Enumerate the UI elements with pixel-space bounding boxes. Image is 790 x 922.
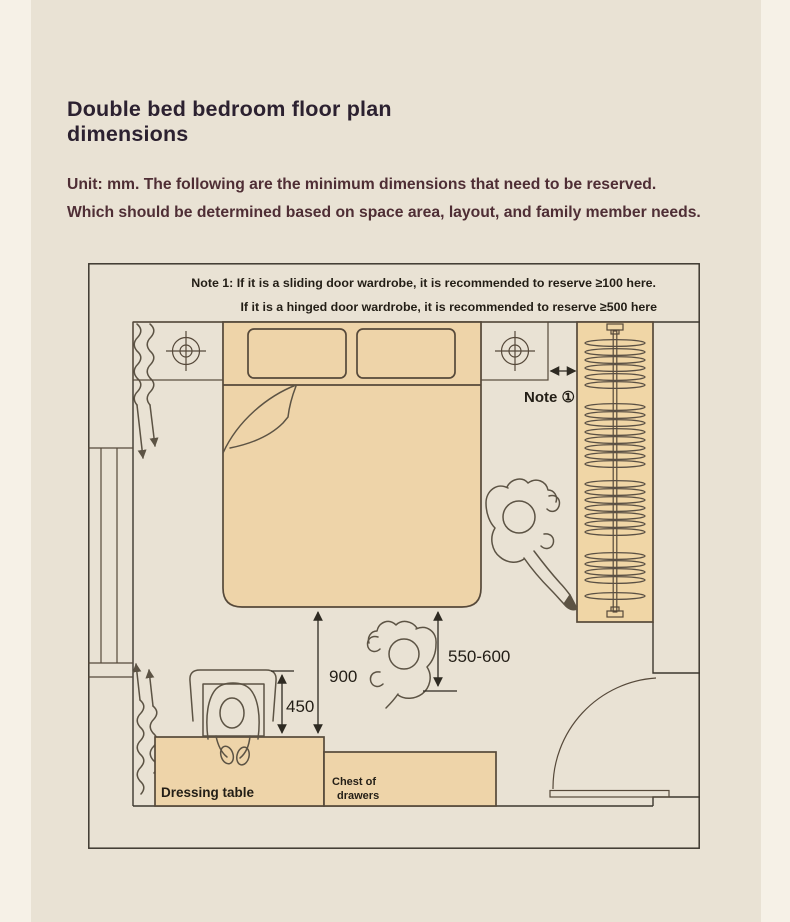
right-margin — [761, 0, 790, 922]
page-title: Double bed bedroom floor plan dimensions — [67, 97, 392, 146]
double-bed — [223, 322, 481, 607]
title-line2: dimensions — [67, 122, 392, 147]
dimension-900-label: 900 — [329, 667, 357, 686]
window-symbol — [88, 448, 133, 677]
page-subtitle: Unit: mm. The following are the minimum … — [67, 171, 701, 226]
note-marker-label: Note ① — [524, 389, 575, 406]
note2-text: If it is a hinged door wardrobe, it is r… — [240, 300, 657, 314]
dimension-450: 450 — [271, 671, 314, 733]
title-line1: Double bed bedroom floor plan — [67, 97, 392, 122]
curtain-top-icon — [134, 324, 155, 458]
chest-label-line2: drawers — [337, 790, 379, 802]
dimension-550-600: 550-600 — [423, 612, 510, 691]
wardrobe — [577, 322, 653, 622]
dressing-table-label: Dressing table — [161, 785, 255, 800]
pillow-left — [248, 329, 346, 378]
person-foot-of-bed-figure — [368, 621, 437, 708]
subtitle-line2: Which should be determined based on spac… — [67, 199, 701, 227]
door — [550, 678, 669, 797]
page: Double bed bedroom floor plan dimensions… — [0, 0, 790, 922]
door-swing-arc — [553, 678, 656, 789]
floor-plan-diagram: Note ① — [88, 263, 700, 849]
door-leaf — [550, 791, 669, 798]
subtitle-line1: Unit: mm. The following are the minimum … — [67, 171, 701, 199]
dimension-900: 900 — [318, 612, 357, 733]
lamp-icon-right — [495, 331, 535, 371]
curtain-bottom-icon — [136, 664, 157, 794]
dimension-450-label: 450 — [286, 697, 314, 716]
note1-text: Note 1: If it is a sliding door wardrobe… — [191, 276, 656, 290]
left-margin — [0, 0, 31, 922]
lamp-icon-left — [166, 331, 206, 371]
chest-label-line1: Chest of — [332, 776, 376, 788]
pillow-right — [357, 329, 455, 378]
dimension-550-600-label: 550-600 — [448, 647, 510, 666]
person-near-wardrobe-figure — [486, 479, 577, 610]
